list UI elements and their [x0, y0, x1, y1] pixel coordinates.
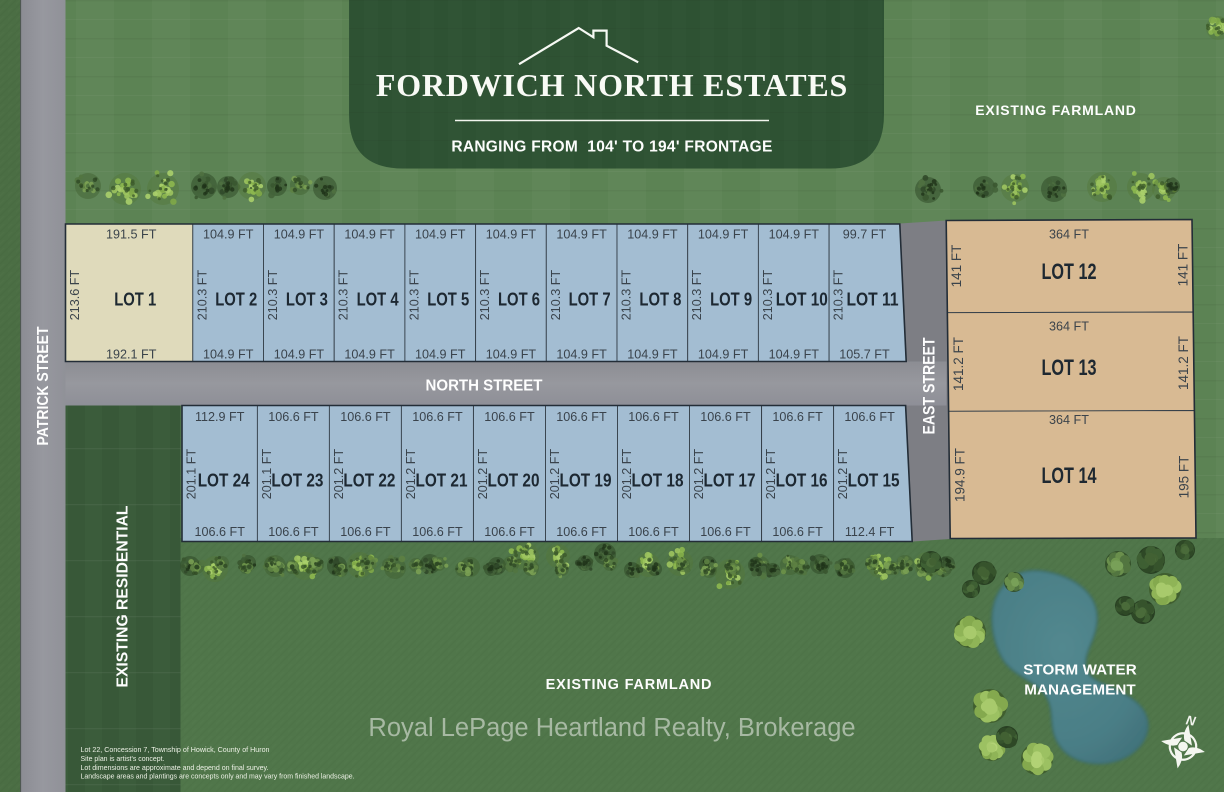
svg-text:PATRICK STREET: PATRICK STREET [35, 326, 52, 445]
svg-text:210.3 FT: 210.3 FT [266, 269, 280, 320]
svg-text:364 FT: 364 FT [1049, 320, 1089, 334]
svg-text:112.9 FT: 112.9 FT [195, 410, 245, 424]
svg-text:104.9 FT: 104.9 FT [556, 228, 607, 242]
svg-text:LOT 15: LOT 15 [848, 471, 900, 491]
svg-text:106.6 FT: 106.6 FT [556, 410, 607, 424]
svg-text:104.9 FT: 104.9 FT [627, 347, 678, 361]
svg-text:141.2 FT: 141.2 FT [951, 337, 966, 391]
svg-text:106.6 FT: 106.6 FT [700, 410, 751, 424]
svg-text:LOT 17: LOT 17 [704, 471, 756, 491]
svg-text:LOT 1: LOT 1 [114, 290, 156, 310]
svg-text:LOT 14: LOT 14 [1042, 463, 1098, 488]
svg-text:Royal LePage Heartland Realty,: Royal LePage Heartland Realty, Brokerage [368, 714, 855, 742]
svg-text:210.3 FT: 210.3 FT [337, 269, 351, 320]
svg-text:LOT 3: LOT 3 [286, 290, 328, 310]
svg-text:106.6 FT: 106.6 FT [700, 525, 751, 539]
svg-text:LOT 22: LOT 22 [343, 471, 395, 491]
svg-text:104.9 FT: 104.9 FT [274, 347, 325, 361]
svg-text:106.6 FT: 106.6 FT [844, 410, 895, 424]
svg-text:106.6 FT: 106.6 FT [772, 525, 823, 539]
svg-text:LOT 7: LOT 7 [569, 290, 611, 310]
svg-text:LOT 20: LOT 20 [488, 471, 540, 491]
svg-text:106.6 FT: 106.6 FT [556, 525, 607, 539]
svg-text:LOT 21: LOT 21 [416, 471, 468, 491]
svg-text:EAST STREET: EAST STREET [921, 338, 939, 435]
svg-text:LOT 18: LOT 18 [632, 471, 684, 491]
svg-text:106.6 FT: 106.6 FT [268, 410, 319, 424]
svg-text:LOT 4: LOT 4 [357, 290, 399, 310]
svg-text:LOT 12: LOT 12 [1042, 259, 1097, 284]
svg-text:Landscape areas and plantings: Landscape areas and plantings are concep… [81, 772, 355, 781]
svg-text:104.9 FT: 104.9 FT [344, 228, 395, 242]
svg-text:LOT 19: LOT 19 [560, 471, 612, 491]
svg-text:104.9 FT: 104.9 FT [769, 228, 820, 242]
svg-text:Site plan is artist's concept.: Site plan is artist's concept. [81, 754, 165, 763]
svg-text:106.6 FT: 106.6 FT [268, 525, 319, 539]
svg-text:NORTH STREET: NORTH STREET [426, 378, 544, 395]
svg-text:LOT 16: LOT 16 [776, 471, 828, 491]
svg-text:104.9 FT: 104.9 FT [627, 228, 678, 242]
svg-text:105.7 FT: 105.7 FT [839, 347, 890, 361]
svg-text:104.9 FT: 104.9 FT [415, 228, 466, 242]
svg-text:LOT 5: LOT 5 [427, 290, 469, 310]
svg-text:213.6 FT: 213.6 FT [68, 269, 82, 320]
svg-text:141 FT: 141 FT [949, 245, 964, 288]
svg-text:194.9 FT: 194.9 FT [953, 448, 968, 502]
svg-text:210.3 FT: 210.3 FT [690, 269, 704, 320]
svg-text:364 FT: 364 FT [1049, 413, 1089, 427]
svg-text:LOT 13: LOT 13 [1042, 355, 1097, 380]
svg-text:106.6 FT: 106.6 FT [340, 410, 391, 424]
svg-text:210.3 FT: 210.3 FT [620, 269, 634, 320]
svg-text:LOT 8: LOT 8 [639, 290, 681, 310]
svg-text:LOT 23: LOT 23 [271, 471, 323, 491]
svg-text:210.3 FT: 210.3 FT [407, 269, 421, 320]
svg-text:210.3 FT: 210.3 FT [478, 269, 492, 320]
svg-text:106.6 FT: 106.6 FT [194, 525, 245, 539]
svg-text:195 FT: 195 FT [1177, 456, 1192, 499]
svg-text:191.5 FT: 191.5 FT [106, 228, 157, 242]
svg-text:364 FT: 364 FT [1049, 228, 1089, 242]
svg-text:LOT 9: LOT 9 [710, 290, 752, 310]
svg-text:RANGING FROM 104' TO 194' FRO: RANGING FROM 104' TO 194' FRONTAGE [451, 139, 772, 156]
svg-text:LOT 2: LOT 2 [215, 290, 257, 310]
svg-text:EXISTING RESIDENTIAL: EXISTING RESIDENTIAL [115, 505, 132, 687]
svg-text:99.7 FT: 99.7 FT [843, 228, 887, 242]
svg-text:LOT 10: LOT 10 [776, 290, 828, 310]
svg-text:192.1 FT: 192.1 FT [106, 347, 157, 361]
svg-text:201.1 FT: 201.1 FT [185, 448, 199, 499]
svg-text:106.6 FT: 106.6 FT [412, 525, 463, 539]
svg-text:STORM WATER: STORM WATER [1023, 662, 1137, 679]
svg-text:EXISTING FARMLAND: EXISTING FARMLAND [546, 677, 713, 693]
svg-text:106.6 FT: 106.6 FT [628, 410, 679, 424]
svg-text:104.9 FT: 104.9 FT [556, 347, 607, 361]
svg-text:210.3 FT: 210.3 FT [832, 269, 846, 320]
svg-text:104.9 FT: 104.9 FT [486, 347, 537, 361]
svg-text:EXISTING FARMLAND: EXISTING FARMLAND [975, 102, 1136, 118]
svg-text:106.6 FT: 106.6 FT [628, 525, 679, 539]
svg-text:112.4 FT: 112.4 FT [845, 525, 895, 539]
svg-text:FORDWICH NORTH ESTATES: FORDWICH NORTH ESTATES [376, 67, 848, 103]
svg-text:210.3 FT: 210.3 FT [549, 269, 563, 320]
svg-text:104.9 FT: 104.9 FT [344, 347, 395, 361]
svg-text:210.3 FT: 210.3 FT [195, 269, 209, 320]
svg-text:104.9 FT: 104.9 FT [203, 228, 254, 242]
svg-text:104.9 FT: 104.9 FT [486, 228, 537, 242]
svg-text:106.6 FT: 106.6 FT [340, 525, 391, 539]
svg-text:104.9 FT: 104.9 FT [769, 347, 820, 361]
svg-text:141 FT: 141 FT [1176, 244, 1191, 287]
svg-text:104.9 FT: 104.9 FT [698, 347, 749, 361]
svg-text:106.6 FT: 106.6 FT [772, 410, 823, 424]
svg-text:104.9 FT: 104.9 FT [203, 347, 254, 361]
svg-text:106.6 FT: 106.6 FT [484, 525, 535, 539]
svg-text:141.2 FT: 141.2 FT [1176, 336, 1191, 390]
svg-text:MANAGEMENT: MANAGEMENT [1024, 682, 1136, 699]
svg-text:LOT 6: LOT 6 [498, 290, 540, 310]
svg-text:104.9 FT: 104.9 FT [698, 228, 749, 242]
svg-text:LOT 11: LOT 11 [847, 290, 899, 310]
svg-text:106.6 FT: 106.6 FT [484, 410, 535, 424]
svg-text:104.9 FT: 104.9 FT [415, 347, 466, 361]
svg-text:LOT 24: LOT 24 [198, 471, 250, 491]
svg-text:210.3 FT: 210.3 FT [761, 269, 775, 320]
svg-text:Lot 22, Concession 7, Township: Lot 22, Concession 7, Township of Howick… [81, 745, 270, 754]
svg-text:104.9 FT: 104.9 FT [274, 228, 325, 242]
svg-text:106.6 FT: 106.6 FT [412, 410, 463, 424]
